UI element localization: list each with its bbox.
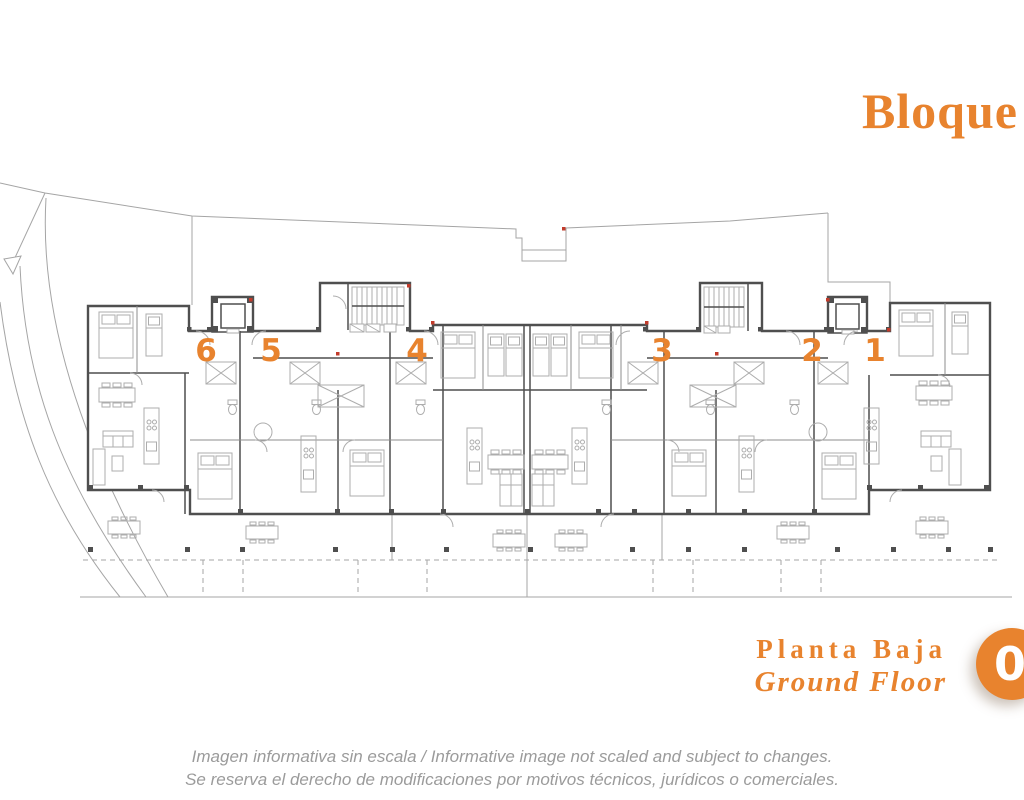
unit-number-1: 1 — [853, 333, 897, 369]
unit-number-6: 6 — [184, 333, 228, 369]
block-title: Bloque — [862, 86, 1018, 136]
brochure-page: Bloque 6 5 4 3 2 1 Planta Baja Ground Fl… — [0, 0, 1024, 800]
disclaimer-line-2: Se reserva el derecho de modificaciones … — [0, 769, 1024, 792]
terrace-layer — [83, 514, 997, 597]
disclaimer: Imagen informativa sin escala / Informat… — [0, 746, 1024, 792]
unit-number-4: 4 — [395, 333, 439, 369]
floor-label: Planta Baja Ground Floor — [755, 633, 947, 700]
building-envelope — [88, 283, 990, 514]
floor-label-english: Ground Floor — [755, 665, 947, 700]
unit-number-5: 5 — [249, 333, 293, 369]
disclaimer-line-1: Imagen informativa sin escala / Informat… — [0, 746, 1024, 769]
unit-number-2: 2 — [790, 333, 834, 369]
floor-label-spanish: Planta Baja — [755, 633, 947, 665]
unit-number-3: 3 — [640, 333, 684, 369]
floor-number: 0 — [994, 637, 1024, 691]
